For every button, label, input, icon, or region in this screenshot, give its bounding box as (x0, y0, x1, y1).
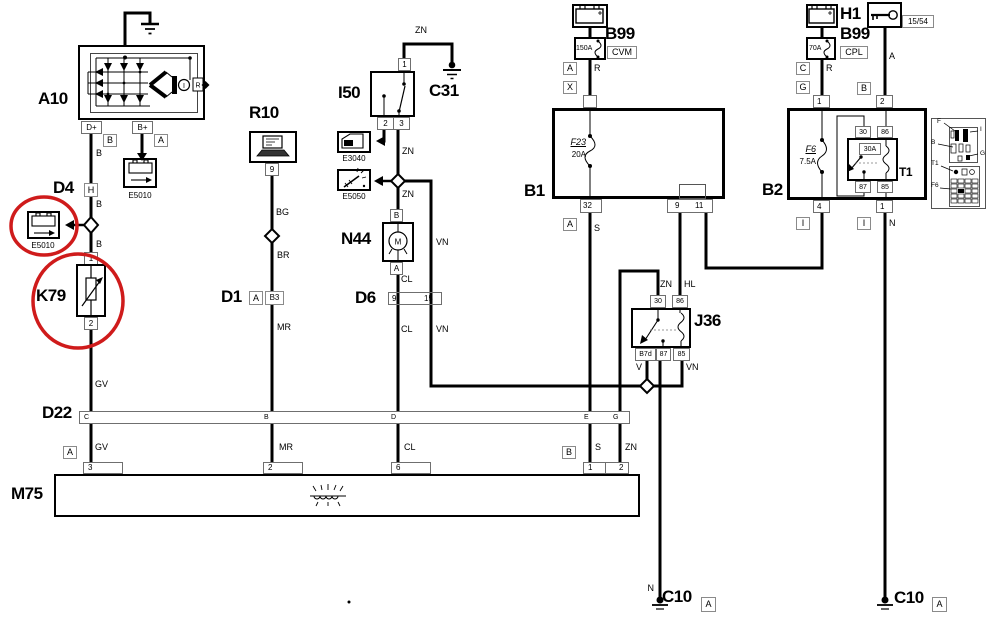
wire-label-b1: B (96, 149, 102, 158)
b2-fuse-rating: 7.5A (790, 158, 816, 166)
m75-pin-2b: 2 (605, 462, 629, 474)
b1-pin-32: 32 (580, 199, 602, 213)
wire-label-vn3: VN (686, 363, 699, 372)
legend-i: I (980, 127, 982, 134)
wire-label-vn2: VN (436, 325, 449, 334)
d22-pin-b: B (264, 414, 269, 421)
wire-label-n1: N (889, 219, 896, 228)
j36-body (631, 308, 691, 348)
c10-right-ref: C10 (894, 589, 924, 606)
b1-pin-9-11 (667, 199, 713, 213)
wire-label-zn-i50: ZN (402, 147, 414, 156)
m75-ref: M75 (11, 485, 43, 502)
j36-ref: J36 (694, 312, 721, 329)
wire-label-b3: B (96, 240, 102, 249)
d22-pin-g: G (613, 414, 618, 421)
b2-pin-bot-4: 4 (813, 200, 830, 213)
diamond-r10 (265, 229, 279, 243)
e5010-side-ref: E5010 (23, 242, 63, 250)
b99r-tag-g: G (796, 81, 810, 94)
t1-pin-85: 85 (877, 181, 893, 193)
n44-ref: N44 (341, 230, 371, 247)
d6-pin-15: 15 (424, 295, 433, 303)
legend-b: B (931, 140, 935, 147)
r10-pin-9: 9 (265, 163, 279, 176)
e5010-top-ref: E5010 (120, 192, 160, 200)
wire-label-zn-n44: ZN (402, 190, 414, 199)
b1-notch (679, 184, 706, 199)
t1-pin-86: 86 (877, 126, 893, 138)
b1-fuse-rating: 20A (562, 151, 586, 159)
b2-pin-top-1: 1 (813, 95, 830, 108)
c10-right-tag-a: A (932, 597, 947, 612)
a10-tag-a: A (154, 134, 168, 147)
wire-label-br: BR (277, 251, 290, 260)
b99c-battery (572, 4, 608, 28)
arrow-left-e5010-side (65, 220, 74, 230)
m75-pin-3: 3 (83, 462, 123, 474)
t1-ref: T1 (899, 166, 912, 178)
a10-ref: A10 (38, 90, 68, 107)
wire-a10-ground (125, 13, 150, 47)
d22-ref: D22 (42, 404, 72, 421)
b2-tag-i1: I (796, 217, 810, 230)
r10-body (249, 131, 297, 163)
wire-label-r1: R (594, 64, 601, 73)
b2-fuse-name: F6 (794, 145, 816, 154)
ground-c31 (443, 62, 461, 78)
ground-a10 (141, 24, 159, 34)
a10-pin-dplus: D+ (81, 121, 102, 134)
b2-pin-top-2: 2 (876, 95, 893, 108)
k79-body (76, 264, 106, 317)
e3040-body (337, 131, 371, 153)
c31-ref: C31 (429, 82, 459, 99)
wiring-diagram: A10 D+ B+ B A E5010 D4 H E5010 K79 1 2 R… (0, 0, 988, 625)
d1-tag-b3: B3 (265, 291, 284, 305)
arrow-left-e5050 (374, 176, 383, 186)
legend-fusebox (949, 166, 980, 207)
diamond-j36 (640, 379, 654, 393)
ground-c10-right (877, 597, 893, 609)
d22-tag-b: B (562, 446, 576, 459)
wire-label-v: V (626, 363, 642, 372)
wire-label-s1: S (594, 224, 600, 233)
h1-key-box (867, 2, 902, 28)
a10-pin-bplus: B+ (132, 121, 153, 134)
i50-pin-2: 2 (377, 117, 394, 130)
legend-connector-box (949, 127, 978, 163)
b99r-code: CPL (840, 46, 868, 59)
k79-pin-2: 2 (84, 317, 98, 330)
i50-body (370, 71, 415, 117)
n44-tag-b: B (390, 209, 403, 222)
legend-g: G (980, 151, 985, 158)
wire-label-cl2: CL (401, 325, 413, 334)
c10-center-ref: C10 (662, 588, 692, 605)
k79-ref: K79 (36, 287, 66, 304)
wire-label-gv1: GV (95, 380, 108, 389)
t1-pin-87: 87 (855, 181, 871, 193)
t1-pin-30: 30 (855, 126, 871, 138)
junction-diamonds (84, 174, 654, 393)
d1-tag-a: A (249, 291, 263, 305)
legend-f: F (937, 119, 941, 126)
wire-label-r2: R (826, 64, 833, 73)
wire-label-bg: BG (276, 208, 289, 217)
stray-dot (348, 601, 351, 604)
e5050-body (337, 169, 371, 191)
m75-pin-1: 1 (583, 462, 607, 474)
diamond-e5050 (391, 174, 405, 188)
b1-tag-a: A (563, 218, 577, 231)
d1-ref: D1 (221, 288, 242, 305)
h1-terminal: 15/54 (902, 15, 934, 28)
t1-rating: 30A (859, 143, 881, 155)
d22-pin-d: D (391, 414, 396, 421)
wire-label-cl1: CL (401, 275, 413, 284)
wire-label-cl3: CL (404, 443, 416, 452)
battery-icons (576, 5, 834, 23)
b99c-fuse-rating: 150A (576, 45, 592, 52)
e3040-ref: E3040 (334, 155, 374, 163)
j36-pin-85: 85 (673, 348, 690, 361)
j36-pin-30: 30 (650, 295, 666, 308)
a10-body (78, 45, 205, 120)
e5050-ref: E5050 (334, 193, 374, 201)
wire-label-mr1: MR (277, 323, 291, 332)
arrow-left-e3040 (376, 136, 385, 146)
wire-label-s2: S (595, 443, 601, 452)
m75-pin-2: 2 (263, 462, 303, 474)
a10-tag-b: B (103, 134, 117, 147)
i50-pin-1: 1 (398, 58, 411, 71)
wire-label-n2: N (638, 584, 654, 593)
r10-ref: R10 (249, 104, 279, 121)
b1-pin-11: 11 (695, 202, 703, 210)
b99c-ref: B99 (605, 25, 635, 42)
b1-ref: B1 (524, 182, 545, 199)
wire-label-zn-d22: ZN (625, 443, 637, 452)
b99c-tag-x: X (563, 81, 577, 94)
d6-ref: D6 (355, 289, 376, 306)
d4-tag-h: H (84, 183, 98, 197)
j36-pin-86: 86 (672, 295, 688, 308)
b99c-code: CVM (607, 46, 637, 59)
i50-ref: I50 (338, 84, 360, 101)
wire-i50-e3040 (379, 130, 384, 141)
i50-pin-3: 3 (393, 117, 410, 130)
d4-ref: D4 (53, 179, 74, 196)
d22-pin-e: E (584, 414, 589, 421)
b2-ref: B2 (762, 181, 783, 198)
wire-label-gv2: GV (95, 443, 108, 452)
b2-tag-b: B (857, 82, 871, 95)
d22-tag-a: A (63, 446, 77, 459)
j36-pin-87: 87 (656, 348, 671, 361)
b99r-fuse-rating: 70A (809, 45, 821, 52)
b99r-battery (806, 4, 838, 28)
h1-ref: H1 (840, 5, 861, 22)
wire-label-vn1: VN (436, 238, 449, 247)
wire-label-a: A (889, 52, 895, 61)
diamond-d4 (84, 217, 98, 233)
b99c-tag-a: A (563, 62, 577, 75)
e5010-side-body (27, 211, 60, 239)
b99r-ref: B99 (840, 25, 870, 42)
b2-pin-bot-1: 1 (876, 200, 893, 213)
n44-body (382, 222, 414, 262)
legend-t1: T1 (931, 161, 939, 168)
d22-strip (79, 411, 630, 424)
b2-tag-i2: I (857, 217, 871, 230)
m75-body (54, 474, 640, 517)
legend-f6: F6 (931, 183, 939, 190)
b1-top-pin (583, 95, 597, 108)
wire-i50-c31 (404, 44, 452, 63)
d6-pin-9: 9 (392, 295, 396, 303)
wire-label-b2: B (96, 200, 102, 209)
e5010-top-body (123, 158, 157, 188)
b1-fuse-name: F23 (562, 138, 586, 147)
b99r-tag-c: C (796, 62, 810, 75)
wire-label-mr2: MR (279, 443, 293, 452)
d22-pin-c: C (84, 414, 89, 421)
m75-pin-6: 6 (391, 462, 431, 474)
wire-label-zn-c31: ZN (415, 26, 427, 35)
b1-pin-9: 9 (675, 202, 679, 210)
j36-pin-b7d: B7d (635, 348, 656, 361)
wire-label-zn-j36: ZN (660, 280, 672, 289)
wire-label-hl: HL (684, 280, 696, 289)
c10-center-tag-a: A (701, 597, 716, 612)
